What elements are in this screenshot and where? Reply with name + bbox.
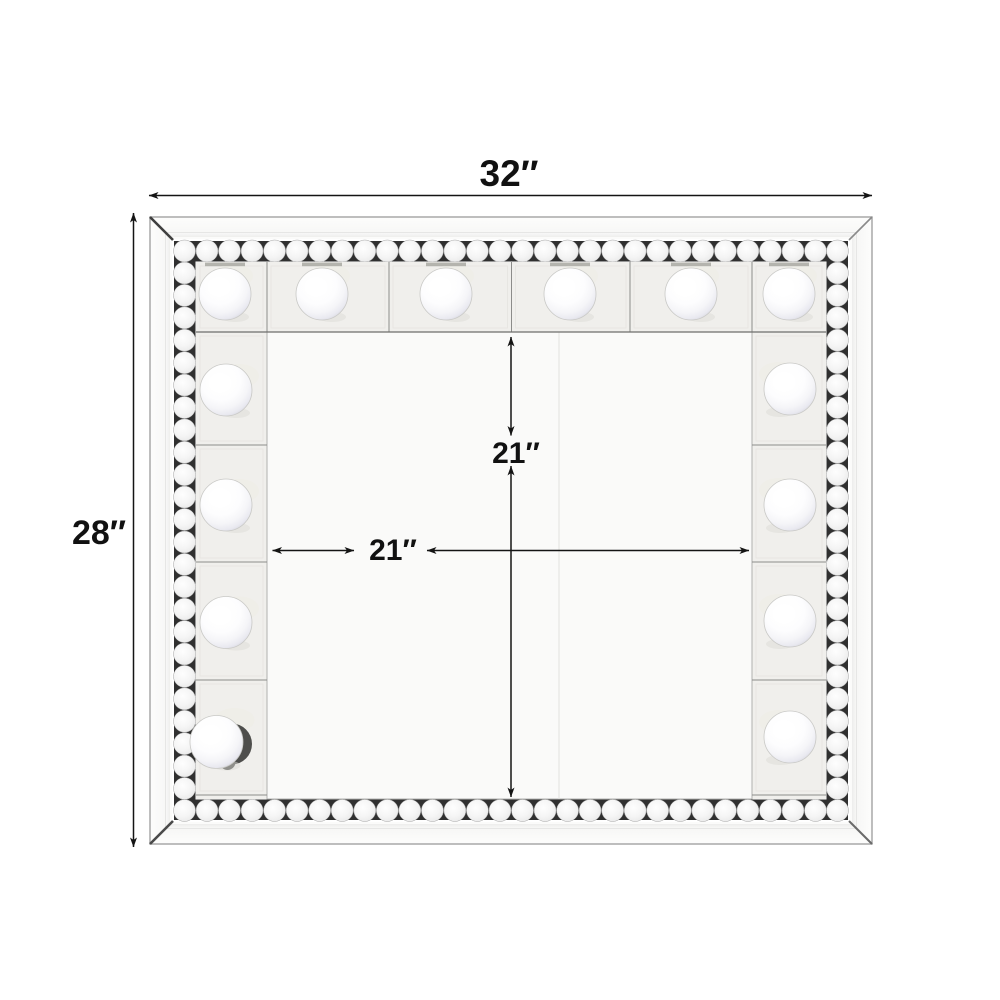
svg-text:21″: 21″ — [492, 437, 540, 470]
svg-text:28″: 28″ — [72, 514, 126, 552]
svg-text:21″: 21″ — [369, 534, 417, 567]
svg-text:32″: 32″ — [480, 153, 539, 194]
